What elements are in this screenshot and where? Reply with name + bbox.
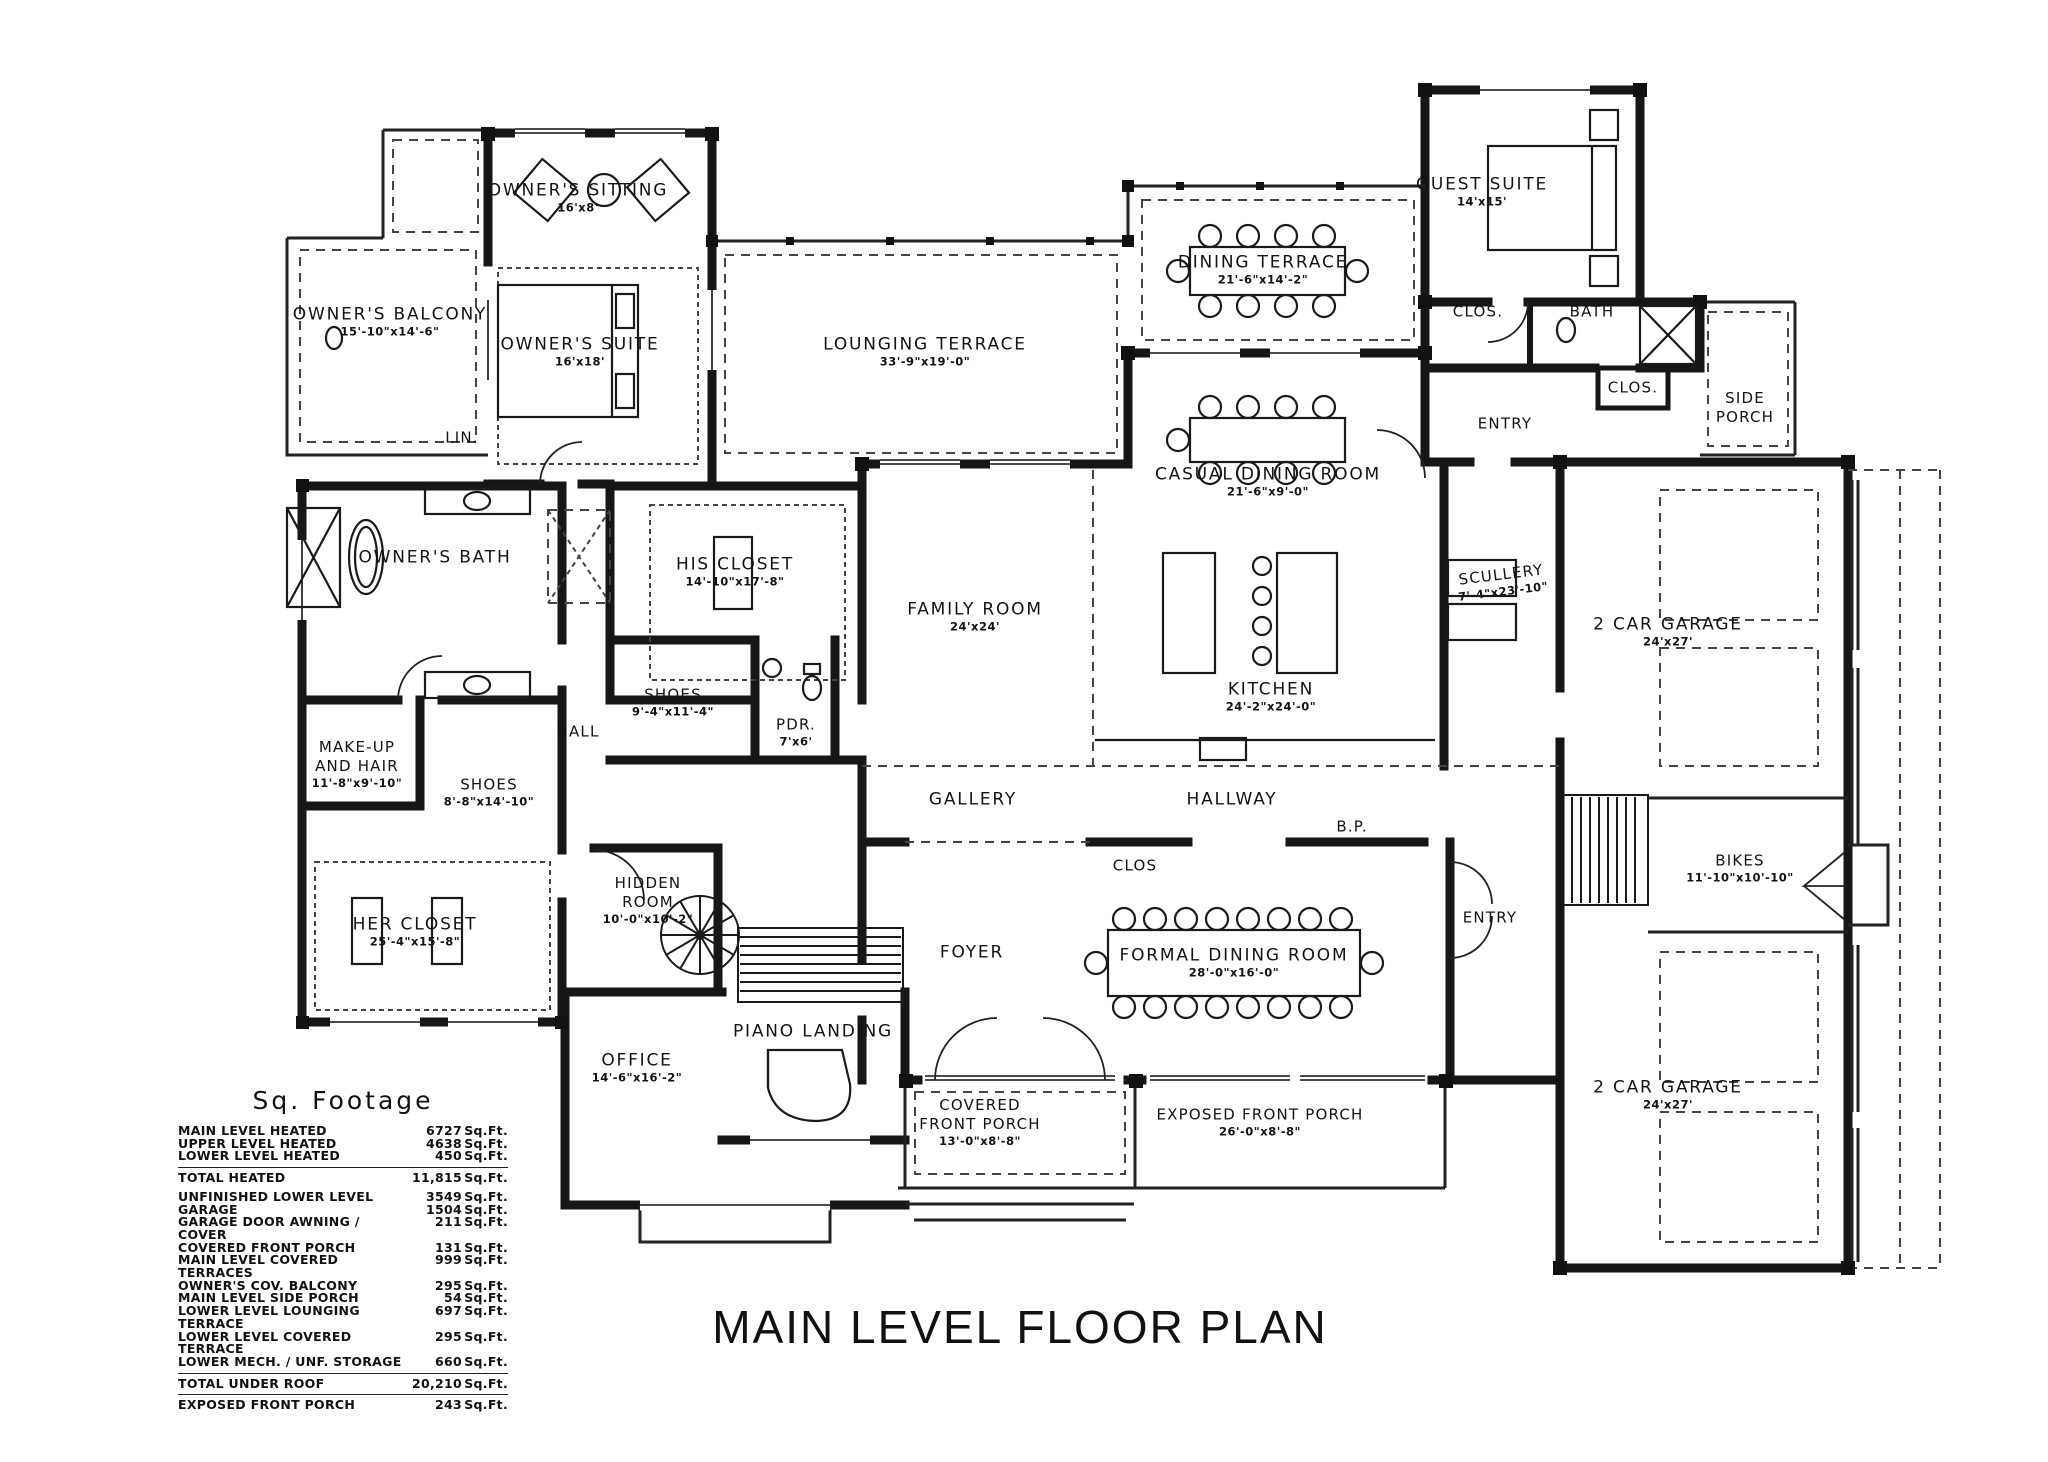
room-label-entry-top: ENTRY: [1478, 415, 1533, 434]
room-label-owners-balcony: OWNER'S BALCONY15'-10"x14'-6": [293, 306, 487, 339]
room-label-covered-porch: COVERED FRONT PORCH13'-0"x8'-8": [919, 1096, 1041, 1148]
room-label-owners-bath: OWNER'S BATH: [358, 549, 511, 568]
room-label-guest-suite: GUEST SUITE14'x15': [1416, 176, 1548, 209]
room-label-closet-2: CLOS.: [1608, 379, 1658, 398]
room-label-bikes: BIKES11'-10"x10'-10": [1686, 852, 1794, 885]
table-row: LOWER LEVEL COVERED TERRACE295Sq.Ft.: [178, 1331, 508, 1356]
table-row: MAIN LEVEL COVERED TERRACES999Sq.Ft.: [178, 1254, 508, 1279]
room-label-garage-top: 2 CAR GARAGE24'x27': [1593, 616, 1743, 649]
room-label-piano-landing: PIANO LANDING: [733, 1023, 893, 1042]
room-label-family-room: FAMILY ROOM24'x24': [907, 601, 1043, 634]
entry-staircase: [1562, 795, 1648, 905]
room-label-dining-terrace: DINING TERRACE21'-6"x14'-2": [1178, 254, 1348, 287]
table-row-total-heated: TOTAL HEATED11,815Sq.Ft.: [178, 1172, 508, 1185]
room-label-garage-bottom: 2 CAR GARAGE24'x27': [1593, 1079, 1743, 1112]
room-label-shoes-his: SHOES9'-4"x11'-4": [632, 686, 714, 719]
page-title: MAIN LEVEL FLOOR PLAN: [712, 1300, 1327, 1354]
table-divider: [178, 1373, 508, 1374]
room-label-kitchen: KITCHEN24'-2"x24'-0": [1226, 681, 1317, 714]
piano-icon: [768, 1050, 850, 1121]
room-label-casual-dining: CASUAL DINING ROOM21'-6"x9'-0": [1155, 466, 1381, 499]
square-footage-heading: Sq. Footage: [178, 1086, 508, 1115]
table-divider: [178, 1167, 508, 1168]
room-label-owners-sitting: OWNER'S SITTING16'x8': [488, 182, 669, 215]
windows: [302, 90, 1590, 1205]
room-label-exposed-porch: EXPOSED FRONT PORCH26'-0"x8'-8": [1156, 1106, 1363, 1139]
room-label-side-porch: SIDE PORCH: [1716, 389, 1774, 427]
room-label-guest-closet: CLOS.: [1453, 303, 1503, 322]
room-label-office: OFFICE14'-6"x16'-2": [592, 1052, 683, 1085]
room-label-hidden-room: HIDDEN ROOM10'-0"x10'-2": [603, 874, 694, 926]
table-row-exposed-porch: EXPOSED FRONT PORCH243Sq.Ft.: [178, 1399, 508, 1412]
kitchen-islands-icon: [1095, 553, 1435, 760]
room-label-foyer: FOYER: [940, 944, 1004, 963]
room-label-his-closet: HIS CLOSET14'-10"x17'-8": [676, 556, 794, 589]
table-divider: [178, 1394, 508, 1395]
table-row: GARAGE DOOR AWNING / COVER211Sq.Ft.: [178, 1216, 508, 1241]
square-footage-table: Sq. Footage MAIN LEVEL HEATED6727Sq.Ft. …: [178, 1086, 508, 1412]
table-row-total-under-roof: TOTAL UNDER ROOF20,210Sq.Ft.: [178, 1378, 508, 1391]
room-label-shoes-her: SHOES8'-8"x14'-10": [444, 776, 535, 809]
table-row: LOWER MECH. / UNF. STORAGE660Sq.Ft.: [178, 1356, 508, 1369]
room-label-owners-suite: OWNER'S SUITE16'x18': [500, 336, 659, 369]
vanity-sinks-icon: [425, 488, 530, 698]
room-label-entry-side: ENTRY: [1463, 909, 1518, 928]
main-staircase: [738, 928, 903, 1002]
table-row: LOWER LEVEL LOUNGING TERRACE697Sq.Ft.: [178, 1305, 508, 1330]
room-label-guest-bath: BATH: [1570, 303, 1615, 322]
room-label-hall: HALL: [556, 723, 599, 742]
shower-icon: [287, 508, 340, 607]
room-label-powder-room: PDR.7'x6': [776, 716, 816, 749]
room-label-hall-closet: CLOS: [1113, 857, 1157, 876]
room-label-linen: LIN.: [445, 429, 479, 448]
lounging-terrace-posts: [786, 182, 1344, 245]
table-row: LOWER LEVEL HEATED450Sq.Ft.: [178, 1150, 508, 1163]
room-label-formal-dining: FORMAL DINING ROOM28'-0"x16'-0": [1120, 947, 1349, 980]
room-label-lounging-terrace: LOUNGING TERRACE33'-9"x19'-0": [823, 336, 1027, 369]
room-label-makeup-hair: MAKE-UP AND HAIR11'-8"x9'-10": [312, 738, 403, 790]
room-label-hallway: HALLWAY: [1187, 791, 1278, 810]
room-label-butlers-pantry: B.P.: [1336, 818, 1367, 837]
room-label-her-closet: HER CLOSET25'-4"x15'-8": [353, 916, 478, 949]
room-label-gallery: GALLERY: [929, 791, 1017, 810]
floor-plan-page: OWNER'S SITTING16'x8' OWNER'S BALCONY15'…: [0, 0, 2048, 1462]
